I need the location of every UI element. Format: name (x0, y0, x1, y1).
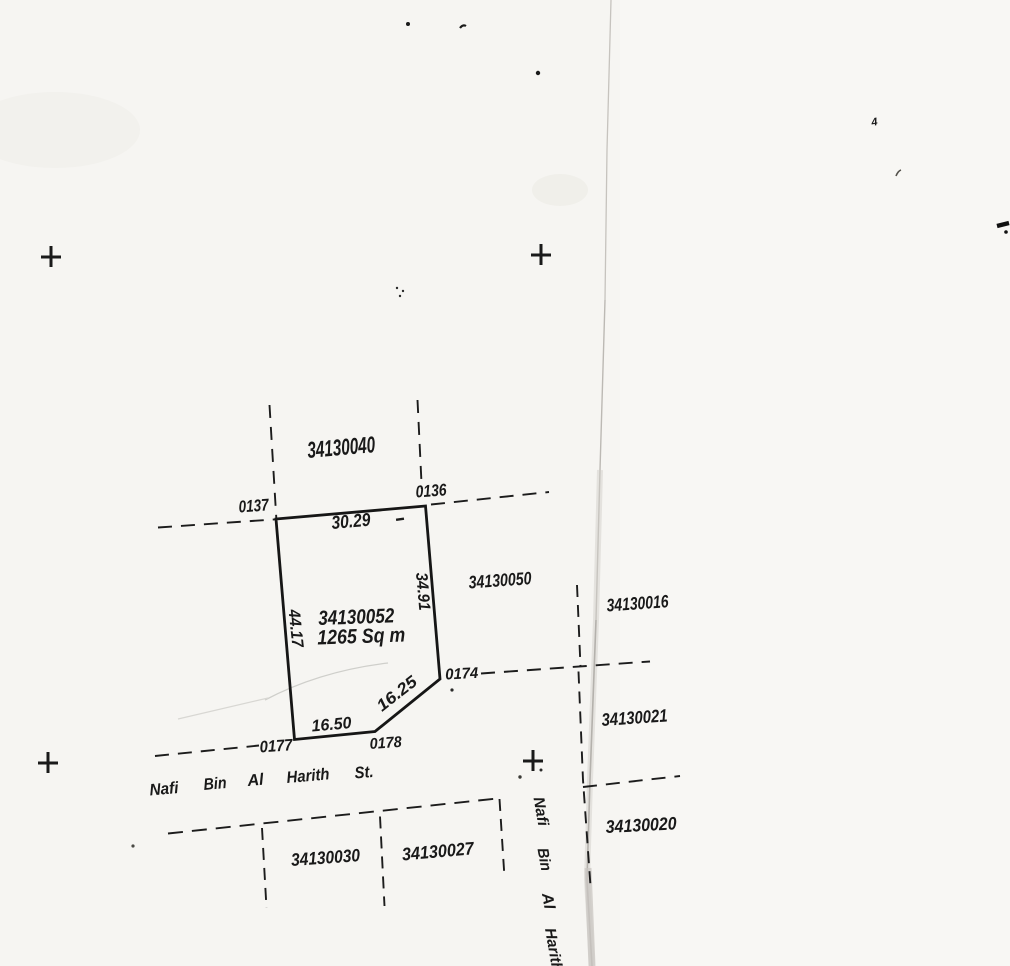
svg-text:34.91: 34.91 (412, 572, 433, 611)
svg-text:1265 Sq m: 1265 Sq m (317, 623, 406, 649)
svg-text:34130020: 34130020 (605, 813, 677, 837)
svg-text:0174: 0174 (445, 665, 479, 684)
svg-text:Nafi: Nafi (149, 779, 180, 799)
svg-text:16.50: 16.50 (311, 714, 353, 735)
svg-text:St.: St. (354, 763, 374, 783)
svg-text:0136: 0136 (415, 480, 448, 501)
svg-text:Al: Al (246, 771, 265, 790)
svg-text:Bin: Bin (203, 774, 227, 794)
svg-text:Harith: Harith (286, 765, 330, 787)
svg-text:30.29: 30.29 (331, 509, 372, 533)
svg-text:0137: 0137 (238, 495, 270, 516)
svg-text:0177: 0177 (259, 736, 294, 756)
svg-text:0178: 0178 (369, 734, 402, 753)
